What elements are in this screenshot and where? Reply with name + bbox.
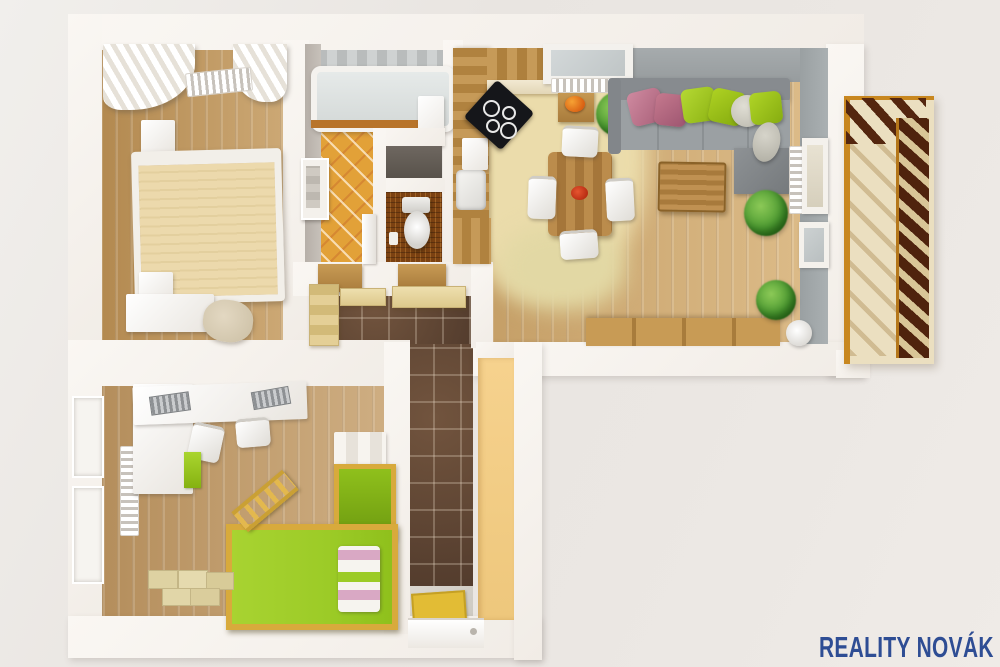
kitchen-counter-bottom	[453, 218, 491, 264]
toilet-paper-holder	[389, 232, 398, 245]
dining-chair-left	[527, 176, 556, 220]
living-plant-1	[744, 190, 788, 236]
hall-wardrobe-tall	[309, 284, 339, 346]
sofa-pillow-lime-3	[748, 90, 783, 125]
wall-left-upper	[68, 14, 102, 378]
kids-green-cube	[184, 452, 201, 488]
toilet-bowl	[404, 211, 430, 249]
kids-window-2	[72, 486, 104, 584]
storage-box-5	[190, 588, 220, 606]
kitchen-sink	[456, 170, 486, 210]
cooktop-burner-4	[500, 122, 517, 139]
dining-chair-bottom	[559, 229, 599, 261]
kids-window-1	[72, 396, 104, 478]
storage-box-4	[162, 588, 192, 606]
balcony-door-pane	[807, 145, 823, 207]
tv-sideboard	[586, 318, 780, 346]
hallway-yellow-wall	[478, 358, 514, 620]
balcony-floor-shadows	[850, 144, 896, 356]
bedroom-dresser	[126, 294, 214, 332]
kids-wardrobe	[334, 432, 386, 468]
hall-cabinet-top-2	[392, 286, 466, 308]
hall-cabinet-top-1	[340, 288, 386, 306]
kids-chair-2	[235, 417, 271, 449]
bedroom-nightstand	[141, 120, 175, 154]
wc-door-threshold	[398, 264, 446, 288]
wall-right-lower	[514, 342, 542, 660]
storage-box-1	[148, 570, 178, 589]
dining-chair-right	[605, 177, 635, 221]
wall-middle	[68, 340, 410, 386]
bathroom-door-leaf	[362, 214, 376, 264]
kids-bed-pillows	[338, 546, 380, 612]
cooktop-burner-2	[502, 106, 516, 120]
entry-door-knob	[470, 628, 477, 635]
floor-plan-render: REALITY NOVÁK	[0, 0, 1000, 667]
wall-hall-living	[471, 262, 493, 348]
living-top-wall-grey	[630, 48, 828, 82]
storage-box-2	[178, 570, 208, 589]
watermark-reality-novak: REALITY NOVÁK	[819, 632, 994, 665]
living-window-right-pane	[804, 228, 824, 262]
table-bowl	[571, 186, 588, 200]
cooktop-burner-1	[483, 100, 500, 117]
fruit-bowl	[565, 96, 585, 112]
wc-niche	[380, 146, 442, 180]
bathroom-mirror-pane	[306, 166, 320, 208]
floor-lamp-base	[786, 320, 812, 346]
living-plant-2	[756, 280, 796, 320]
dining-chair-top	[561, 125, 599, 158]
balcony-railing	[896, 118, 929, 358]
coffee-table	[658, 161, 727, 212]
kitchen-cabinet-inset	[462, 138, 488, 170]
sofa-armrest-left	[608, 78, 621, 154]
cooktop-burner-3	[486, 119, 500, 133]
hallway-floor-vertical	[408, 344, 473, 590]
living-window-pane	[551, 50, 625, 76]
